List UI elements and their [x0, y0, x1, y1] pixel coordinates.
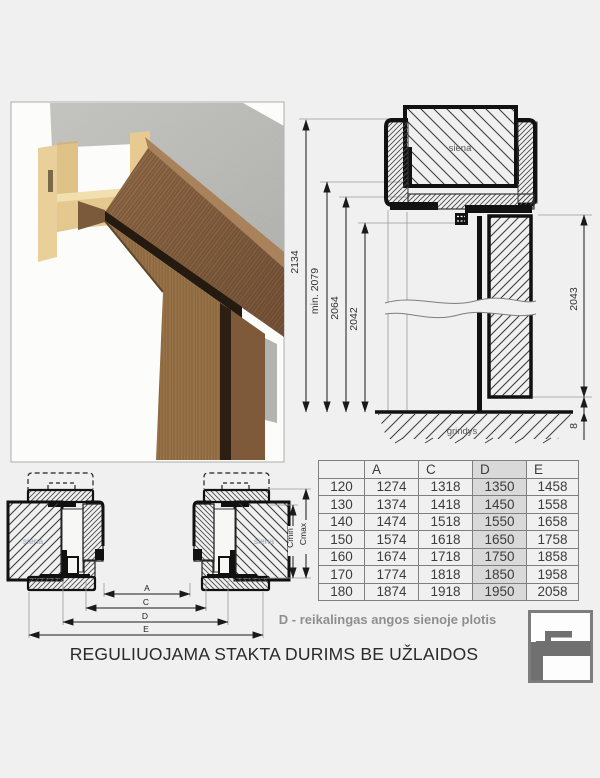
table-row: 1701774181818501958: [319, 566, 579, 584]
cell: 1950: [473, 583, 527, 601]
left-jamb: [8, 473, 104, 590]
door-stop: [477, 216, 482, 412]
header-d: D: [473, 461, 527, 479]
cell: 120: [319, 478, 365, 496]
table-row: 1201274131813501458: [319, 478, 579, 496]
dim-cmin: Cmin: [285, 528, 295, 548]
cell: 1350: [473, 478, 527, 496]
plan-section-drawing: siena siena A C D E Cmin Cmax: [8, 473, 311, 638]
table-header-row: A C D E: [319, 461, 579, 479]
compression-seal: [455, 213, 468, 225]
cell: 1318: [419, 478, 473, 496]
cell: 2058: [527, 583, 579, 601]
wall-label: siena: [449, 143, 472, 154]
cell: 1658: [527, 513, 579, 531]
table-row: 1601674171817501858: [319, 548, 579, 566]
dim-frame-height: 2064: [329, 296, 341, 320]
header-a: A: [365, 461, 419, 479]
cell: 1274: [365, 478, 419, 496]
cell: 1550: [473, 513, 527, 531]
dim-floor-gap: 8: [568, 423, 580, 429]
dim-opening-height: 2042: [348, 307, 360, 331]
bracket-left-hatch: [387, 122, 408, 203]
cell: 130: [319, 496, 365, 514]
cell: 1674: [365, 548, 419, 566]
cell: 180: [319, 583, 365, 601]
dim-a: A: [144, 583, 150, 593]
cell: 1958: [527, 566, 579, 584]
concrete-sliver: [265, 338, 277, 423]
cell: 1750: [473, 548, 527, 566]
wall-label-right: siena: [254, 536, 275, 546]
cell: 1718: [419, 548, 473, 566]
cell: 1418: [419, 496, 473, 514]
spec-sheet: siena grindys 2134 min. 2079 2064 2042 2…: [0, 0, 600, 773]
cell: 1858: [527, 548, 579, 566]
d-dimension-note: D - reikalingas angos sienoje plotis: [270, 612, 505, 627]
cell: 1574: [365, 531, 419, 549]
cell: 1874: [365, 583, 419, 601]
right-jamb: [193, 473, 289, 590]
cell: 1758: [527, 531, 579, 549]
table-row: 1801874191819502058: [319, 583, 579, 601]
header-blank: [319, 461, 365, 479]
cell: 1558: [527, 496, 579, 514]
jamb-groove: [220, 303, 231, 460]
cell: 1774: [365, 566, 419, 584]
head-foot-left: [390, 202, 438, 210]
floor-label: grindys: [447, 426, 478, 437]
table-row: 1501574161816501758: [319, 531, 579, 549]
cell: 1458: [527, 478, 579, 496]
gap-arrow: [581, 412, 588, 422]
cell: 1450: [473, 496, 527, 514]
frame-corner-photo: [11, 102, 284, 462]
cell: 1850: [473, 566, 527, 584]
dim-cmax: Cmax: [298, 522, 308, 545]
cell: 150: [319, 531, 365, 549]
company-logo: [530, 612, 592, 682]
wall-label-left: siena: [23, 536, 44, 546]
dim-e: E: [143, 624, 149, 634]
cell: 160: [319, 548, 365, 566]
dimension-table: A C D E 1201274131813501458 130137414181…: [318, 460, 579, 601]
dim-total-height: 2134: [289, 250, 301, 274]
cell: 1474: [365, 513, 419, 531]
header-e: E: [527, 461, 579, 479]
cell: 1818: [419, 566, 473, 584]
table-row: 1301374141814501558: [319, 496, 579, 514]
cell: 1650: [473, 531, 527, 549]
vertical-section-drawing: siena grindys 2134 min. 2079 2064 2042 2…: [289, 107, 592, 443]
table-row: 1401474151815501658: [319, 513, 579, 531]
cell: 1374: [365, 496, 419, 514]
head-foot-right: [465, 205, 532, 213]
header-c: C: [419, 461, 473, 479]
dim-c: C: [143, 597, 149, 607]
jamb-right-band: [231, 310, 265, 460]
dim-min-height: min. 2079: [309, 268, 321, 314]
cell: 1618: [419, 531, 473, 549]
mdf-slot-left: [48, 170, 53, 192]
page-title: REGULIUOJAMA STAKTA DURIMS BE UŽLAIDOS: [28, 644, 520, 665]
cell: 170: [319, 566, 365, 584]
dim-leaf-height: 2043: [568, 287, 580, 311]
cell: 140: [319, 513, 365, 531]
cell: 1518: [419, 513, 473, 531]
dim-d: D: [142, 611, 148, 621]
cell: 1918: [419, 583, 473, 601]
mdf-left-leg: [38, 145, 57, 262]
